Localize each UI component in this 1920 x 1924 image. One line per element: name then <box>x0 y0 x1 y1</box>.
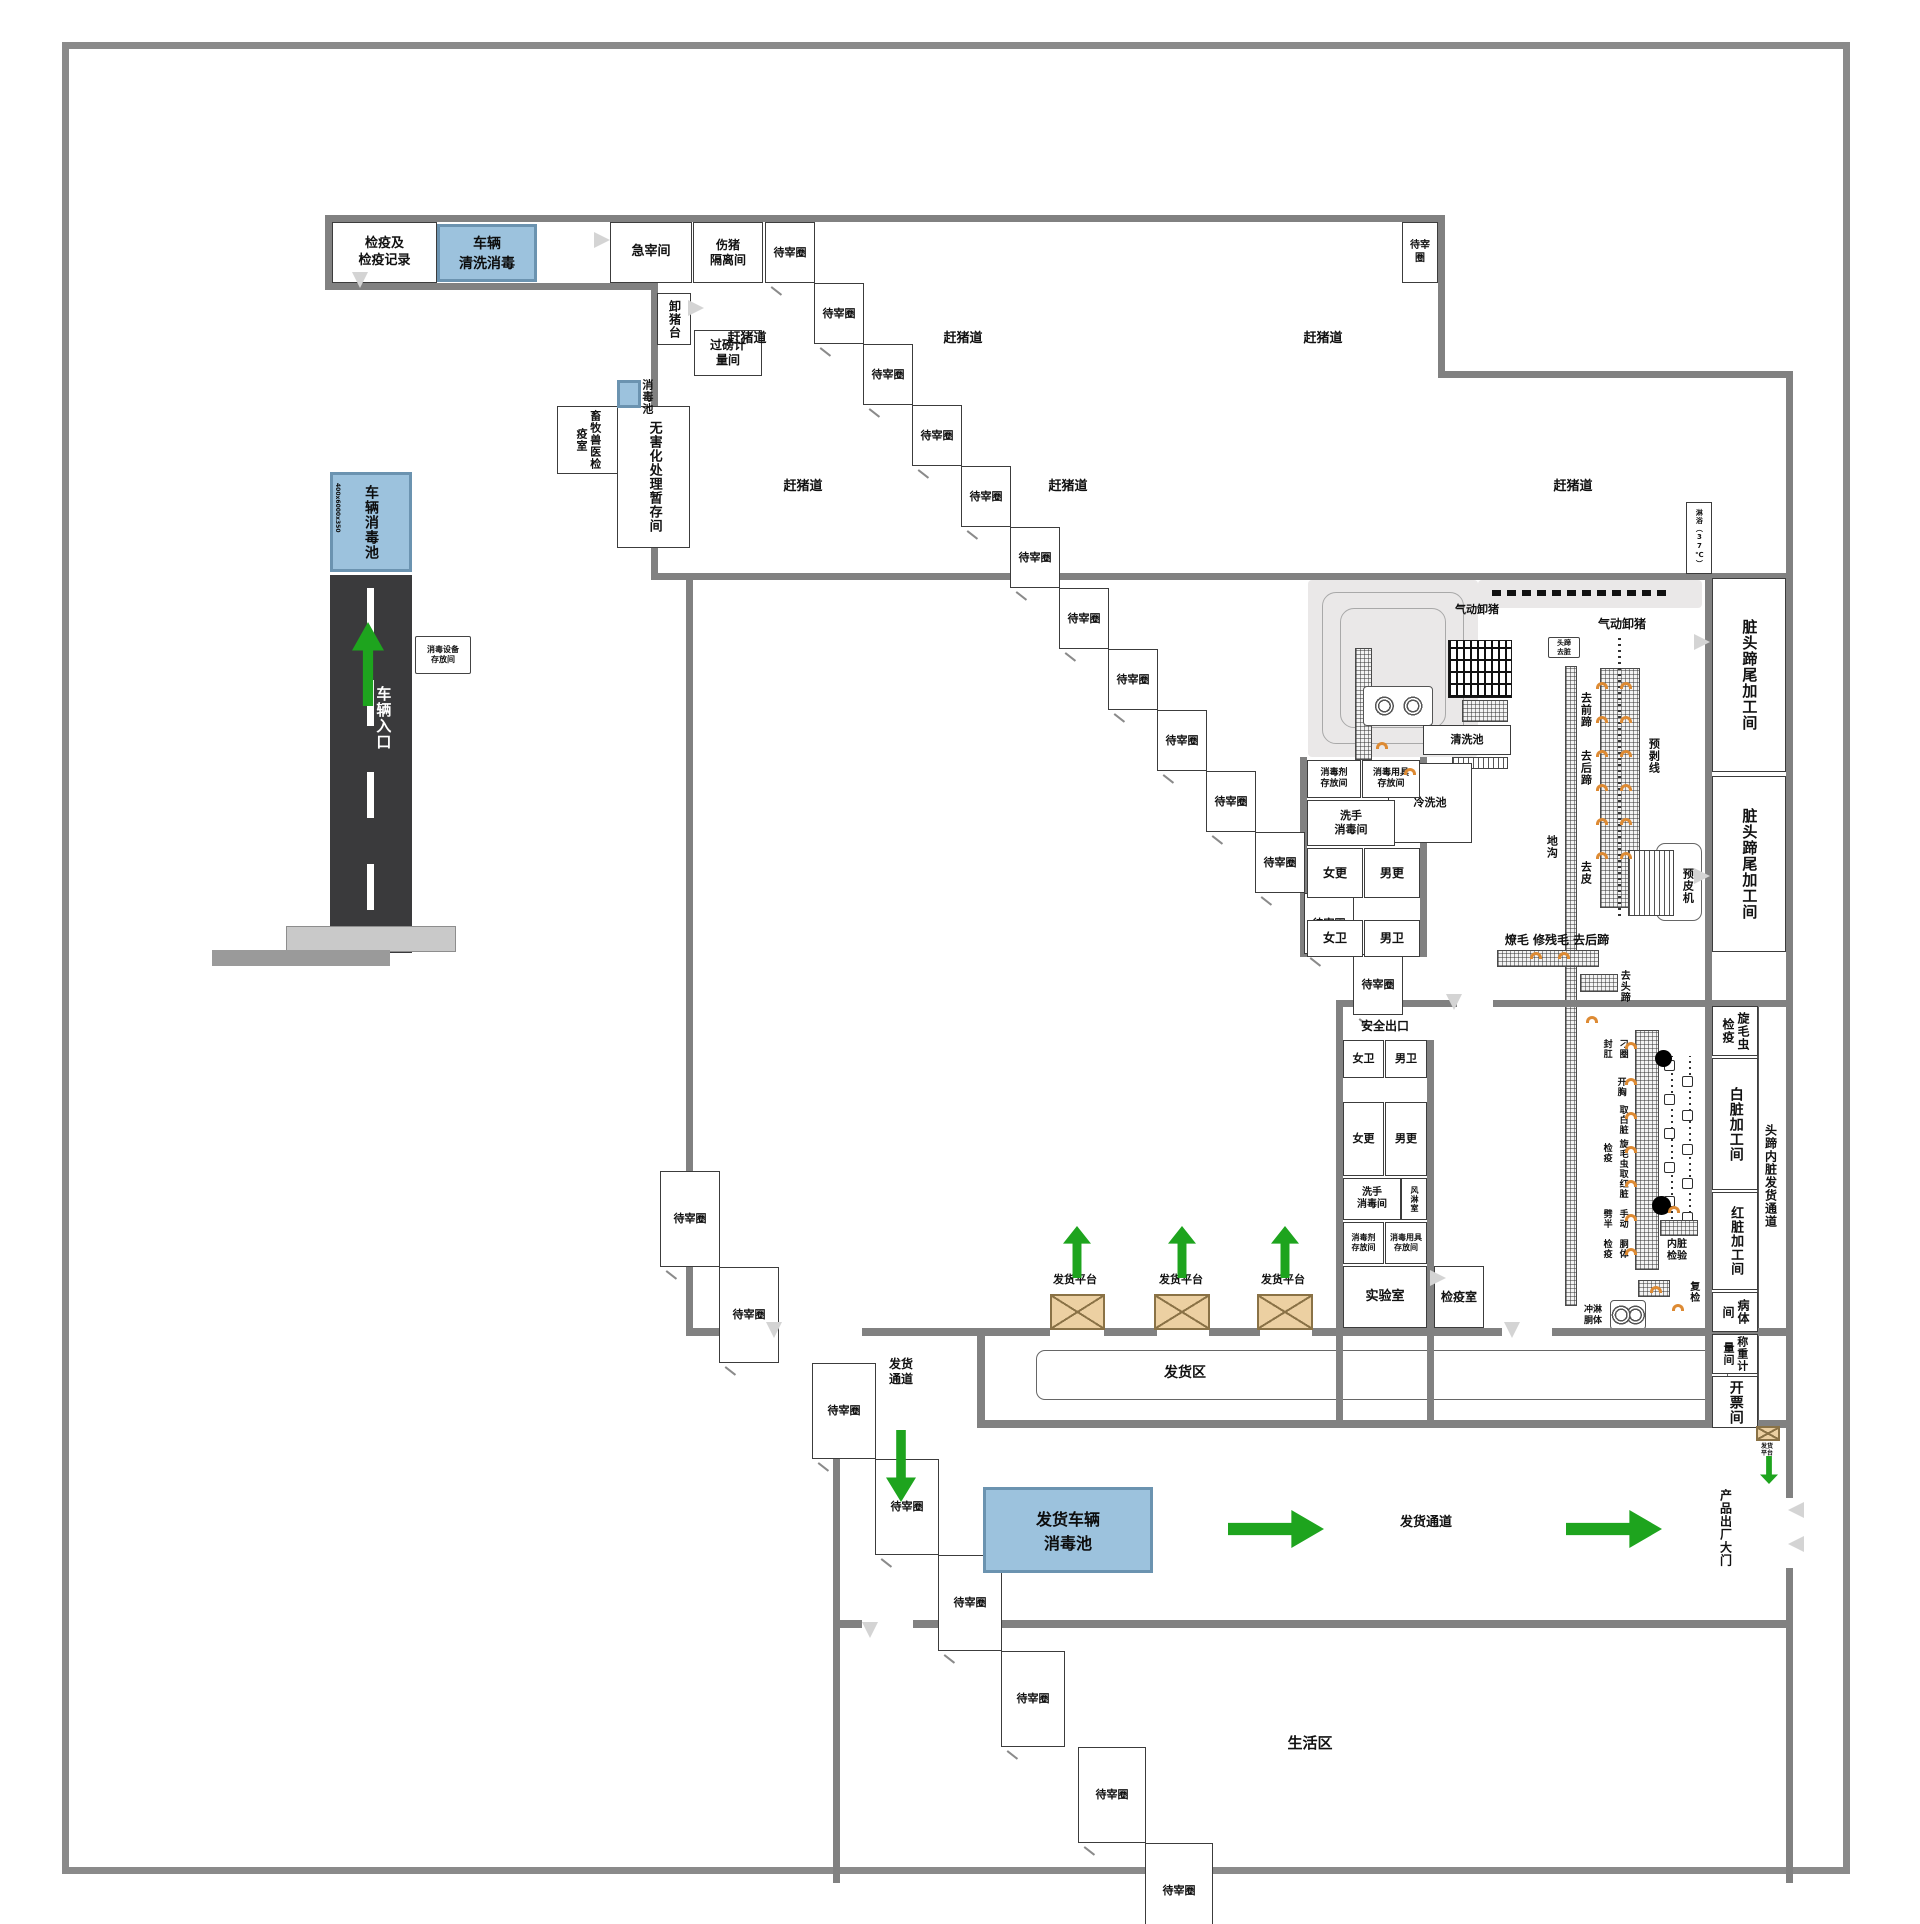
station-label: 刁圈 <box>1616 1034 1628 1064</box>
holding-pen: 待宰圈 <box>719 1267 779 1363</box>
door-swing-icon <box>594 232 610 248</box>
pneumatic-unload-label: 气动卸猪 <box>1444 602 1510 617</box>
wall <box>1104 1328 1157 1336</box>
pig-icon <box>1620 716 1632 723</box>
vehicle-disinfect-pool: 车辆消毒池400x6000x350 <box>330 472 412 572</box>
room-offal-head-hoof-tail-1: 脏头蹄尾加工间 <box>1712 578 1786 772</box>
loading-dock-small <box>1756 1426 1780 1441</box>
holding-pen: 待宰圈 <box>1059 588 1109 649</box>
pig-icon <box>1376 742 1388 749</box>
wall <box>325 215 332 290</box>
inspect-conveyor <box>1660 1220 1698 1236</box>
pig-icon <box>1596 682 1608 689</box>
pig-icon <box>1668 1206 1680 1213</box>
room-disinfect-tools-up: 消毒用具 存放间 <box>1362 760 1420 798</box>
holding-pen: 待宰圈 <box>814 283 864 344</box>
vehicle-entrance-label: 车辆入口 <box>372 666 394 770</box>
pig-icon <box>1596 716 1608 723</box>
holding-pen: 待宰圈 <box>1206 771 1256 832</box>
pig-icon <box>1620 750 1632 757</box>
door-swing-icon <box>352 272 368 288</box>
holding-pen: 待宰圈 <box>863 344 913 405</box>
room-white-offal: 白脏加工间 <box>1712 1058 1758 1190</box>
pig-driveway-label: 赶猪道 <box>1035 478 1101 496</box>
wall <box>838 1620 862 1628</box>
holding-pen: 待宰圈 <box>875 1459 939 1555</box>
gate-platform <box>286 926 456 952</box>
room-disinfect-tools-low: 消毒用具 存放间 <box>1385 1222 1427 1264</box>
room-quarantine-record: 检疫及 检疫记录 <box>332 222 437 283</box>
door-swing-icon <box>1694 634 1710 650</box>
wall <box>913 1620 1793 1628</box>
hook <box>1664 1162 1675 1173</box>
disinfect-pool-label: 消毒池 <box>638 374 656 420</box>
room-disinfectant-storage-low: 消毒剂 存放间 <box>1343 1222 1384 1264</box>
pig-icon <box>1620 852 1632 859</box>
vehicle-wash-disinfect: 车辆 清洗消毒 <box>437 224 537 282</box>
carcass-shower <box>1610 1300 1646 1330</box>
hook <box>1682 1110 1693 1121</box>
safety-exit-label: 安全出口 <box>1350 1018 1420 1034</box>
room-disinfectant-storage-up: 消毒剂 存放间 <box>1307 760 1361 798</box>
pig-icon <box>1586 1016 1598 1023</box>
station-label: 检疫 <box>1600 1138 1612 1168</box>
holding-pen: 待宰圈 <box>1108 649 1158 710</box>
room-men-locker-low: 男更 <box>1385 1102 1427 1176</box>
head-hoof-eviscerate-label: 头蹄 去脏 <box>1548 637 1580 658</box>
wall <box>651 573 1793 580</box>
room-vet-quarantine: 畜牧兽医检疫室 <box>557 406 619 474</box>
holding-pen: 待宰圈 <box>961 466 1011 527</box>
pig-icon <box>1625 1180 1637 1187</box>
room-emergency-slaughter: 急宰间 <box>610 222 692 283</box>
holding-pen: 待宰圈 <box>1078 1747 1146 1843</box>
pig-icon <box>1625 1248 1637 1255</box>
room-harmless-treatment: 无害化处理暂存间 <box>617 406 690 548</box>
pig-icon <box>1672 1304 1684 1311</box>
front-hoof-label: 去前蹄 <box>1578 684 1593 736</box>
room-unloading-platform: 卸猪台 <box>657 293 691 345</box>
pig-icon <box>1620 818 1632 825</box>
holding-pen: 待宰圈 <box>912 405 962 466</box>
wall <box>325 283 658 290</box>
wall <box>1209 1328 1260 1336</box>
dock-label-small: 发货 平台 <box>1752 1442 1782 1458</box>
door-swing-icon <box>1788 1536 1804 1552</box>
overhead-conveyor <box>1492 590 1672 596</box>
scald-tubs <box>1363 686 1433 726</box>
head-hoof-table <box>1580 974 1618 992</box>
pig-driveway-label: 赶猪道 <box>1290 330 1356 348</box>
loading-dock <box>1154 1294 1210 1330</box>
hook <box>1664 1094 1675 1105</box>
bleeding-rack <box>1448 640 1512 698</box>
shipping-vehicle-disinfect-pool: 发货车辆 消毒池 <box>983 1487 1153 1573</box>
pig-icon <box>1650 1286 1662 1293</box>
floor-trench <box>1565 666 1577 1306</box>
pneumatic-unload-label: 气动卸猪 <box>1586 616 1658 632</box>
room-washing-pool: 清洗池 <box>1423 725 1511 755</box>
pig-icon <box>1625 1214 1637 1221</box>
room-red-offal: 红脏加工间 <box>1712 1192 1758 1290</box>
viscera-inspect-label: 内脏 检验 <box>1662 1236 1692 1266</box>
grid-table <box>1462 700 1508 722</box>
station-label: 开胸 <box>1614 1072 1626 1102</box>
wall <box>862 1328 985 1336</box>
station-label: 检疫 <box>1600 1234 1612 1264</box>
product-exit-gate-label: 产品出厂大门 <box>1714 1478 1736 1578</box>
holding-pen: 待宰圈 <box>1157 710 1207 771</box>
floor-trench-label: 地沟 <box>1544 828 1559 866</box>
station-label: 封肛 <box>1600 1034 1612 1064</box>
hook <box>1682 1178 1693 1189</box>
wall <box>977 1336 985 1428</box>
shipping-corridor-label-h: 发货通道 <box>1378 1514 1474 1532</box>
pre-skinner-label: 预皮机 <box>1680 860 1695 912</box>
carcass-shower-label: 冲淋 胴体 <box>1580 1302 1606 1330</box>
shipping-corridor-label-v: 发货 通道 <box>888 1340 914 1404</box>
loading-dock <box>1050 1294 1105 1330</box>
pig-icon <box>1625 1146 1637 1153</box>
room-injured-pig-isolation: 伤猪 隔离间 <box>693 222 763 283</box>
room-women-locker-low: 女更 <box>1343 1102 1384 1176</box>
rotary-table <box>1655 1050 1672 1067</box>
pig-icon <box>1558 952 1570 959</box>
pig-icon <box>1625 1078 1637 1085</box>
hook <box>1682 1076 1693 1087</box>
pig-icon <box>1596 750 1608 757</box>
pig-icon <box>1530 952 1542 959</box>
holding-pen: 待宰圈 <box>1255 832 1305 893</box>
pig-icon <box>1596 818 1608 825</box>
room-men-wc-up: 男卫 <box>1364 920 1420 957</box>
offal-shipping-corridor-label: 头蹄内脏发货通道 <box>1760 1106 1780 1246</box>
station-label: 劈半 <box>1600 1204 1612 1234</box>
singe-trim-label: 燎毛 修残毛 去后蹄 <box>1482 932 1632 948</box>
holding-pen: 待宰 圈 <box>1402 222 1438 283</box>
door-swing-icon <box>1694 868 1710 884</box>
gate-base <box>212 950 390 966</box>
holding-pen: 待宰圈 <box>765 222 815 283</box>
wall <box>1786 371 1793 1883</box>
room-handwash-low: 洗手 消毒间 <box>1343 1178 1401 1220</box>
loading-dock <box>1257 1294 1313 1330</box>
wall <box>325 215 1445 222</box>
door-swing-icon <box>688 300 704 316</box>
holding-pen: 待宰圈 <box>812 1363 876 1459</box>
door-swing-icon <box>766 1322 782 1338</box>
wall <box>1427 1040 1434 1420</box>
door-swing-icon <box>1788 1502 1804 1518</box>
wall <box>985 1328 1050 1336</box>
door-swing-icon <box>862 1622 878 1638</box>
holding-pen: 待宰圈 <box>1145 1843 1213 1924</box>
pig-icon <box>1625 1112 1637 1119</box>
wall <box>1336 1007 1343 1420</box>
door-swing-icon <box>1446 994 1462 1010</box>
pig-icon <box>1620 682 1632 689</box>
holding-pen: 待宰圈 <box>1353 954 1403 1015</box>
wall <box>833 1427 840 1883</box>
living-area-label: 生活区 <box>1262 1732 1358 1754</box>
pig-driveway-label: 赶猪道 <box>930 330 996 348</box>
wall <box>977 1420 1793 1428</box>
chain-line <box>1618 634 1621 916</box>
door-swing-icon <box>1430 1270 1446 1286</box>
wall <box>1438 215 1445 378</box>
room-offal-head-hoof-tail-2: 脏头蹄尾加工间 <box>1712 776 1786 952</box>
hook <box>1682 1144 1693 1155</box>
room-shower-cell: 淋浴（37℃） <box>1686 502 1712 574</box>
room-women-wc-low: 女卫 <box>1343 1040 1384 1078</box>
floor-plan: 待宰圈待宰圈待宰圈待宰圈待宰圈待宰圈待宰圈待宰圈待宰圈待宰圈待宰圈待宰圈待宰圈待… <box>0 0 1920 1924</box>
recheck-label: 复检 <box>1686 1276 1699 1308</box>
room-women-locker-up: 女更 <box>1307 848 1363 898</box>
holding-pen: 待宰圈 <box>1010 527 1060 588</box>
pig-icon <box>1404 768 1416 775</box>
skinning-label: 去皮 <box>1578 854 1593 892</box>
rear-hoof-label: 去后蹄 <box>1578 742 1593 794</box>
room-men-wc-low: 男卫 <box>1385 1040 1427 1078</box>
hook <box>1664 1128 1675 1139</box>
pig-icon <box>1620 784 1632 791</box>
pig-driveway-label: 赶猪道 <box>714 330 780 348</box>
head-hoof-removal-label: 去头蹄 <box>1616 964 1630 1008</box>
pig-icon <box>1625 1042 1637 1049</box>
room-air-shower: 风淋室 <box>1401 1178 1427 1220</box>
shipping-area-label: 发货区 <box>1140 1362 1230 1386</box>
room-diseased-carcass: 病体间 <box>1712 1292 1758 1332</box>
room-men-locker-up: 男更 <box>1364 848 1420 898</box>
room-trichinella-quarantine: 旋毛虫检疫 <box>1712 1006 1758 1056</box>
door-swing-icon <box>1504 1322 1520 1338</box>
pre-strip-line-label: 预剥线 <box>1646 730 1661 782</box>
pig-icon <box>1596 852 1608 859</box>
skinning-machine <box>1628 850 1674 916</box>
pig-icon <box>1596 784 1608 791</box>
wall <box>1705 578 1712 1428</box>
holding-pen: 待宰圈 <box>1001 1651 1065 1747</box>
pig-driveway-label: 赶猪道 <box>1540 478 1606 496</box>
evisceration-line <box>1635 1030 1659 1270</box>
disinfect-equip-storage-label: 消毒设备 存放间 <box>415 636 471 674</box>
room-laboratory: 实验室 <box>1343 1266 1427 1328</box>
room-handwash-up: 洗手 消毒间 <box>1307 800 1395 846</box>
pig-driveway-label: 赶猪道 <box>770 478 836 496</box>
singe-table <box>1497 950 1599 967</box>
room-weighing: 称重计量间 <box>1712 1334 1758 1374</box>
room-women-wc-up: 女卫 <box>1307 920 1363 957</box>
room-ticketing: 开票间 <box>1712 1376 1758 1428</box>
pool-dimension-label: 400x6000x350 <box>334 483 341 533</box>
holding-pen: 待宰圈 <box>660 1171 720 1267</box>
wall <box>1438 371 1793 378</box>
